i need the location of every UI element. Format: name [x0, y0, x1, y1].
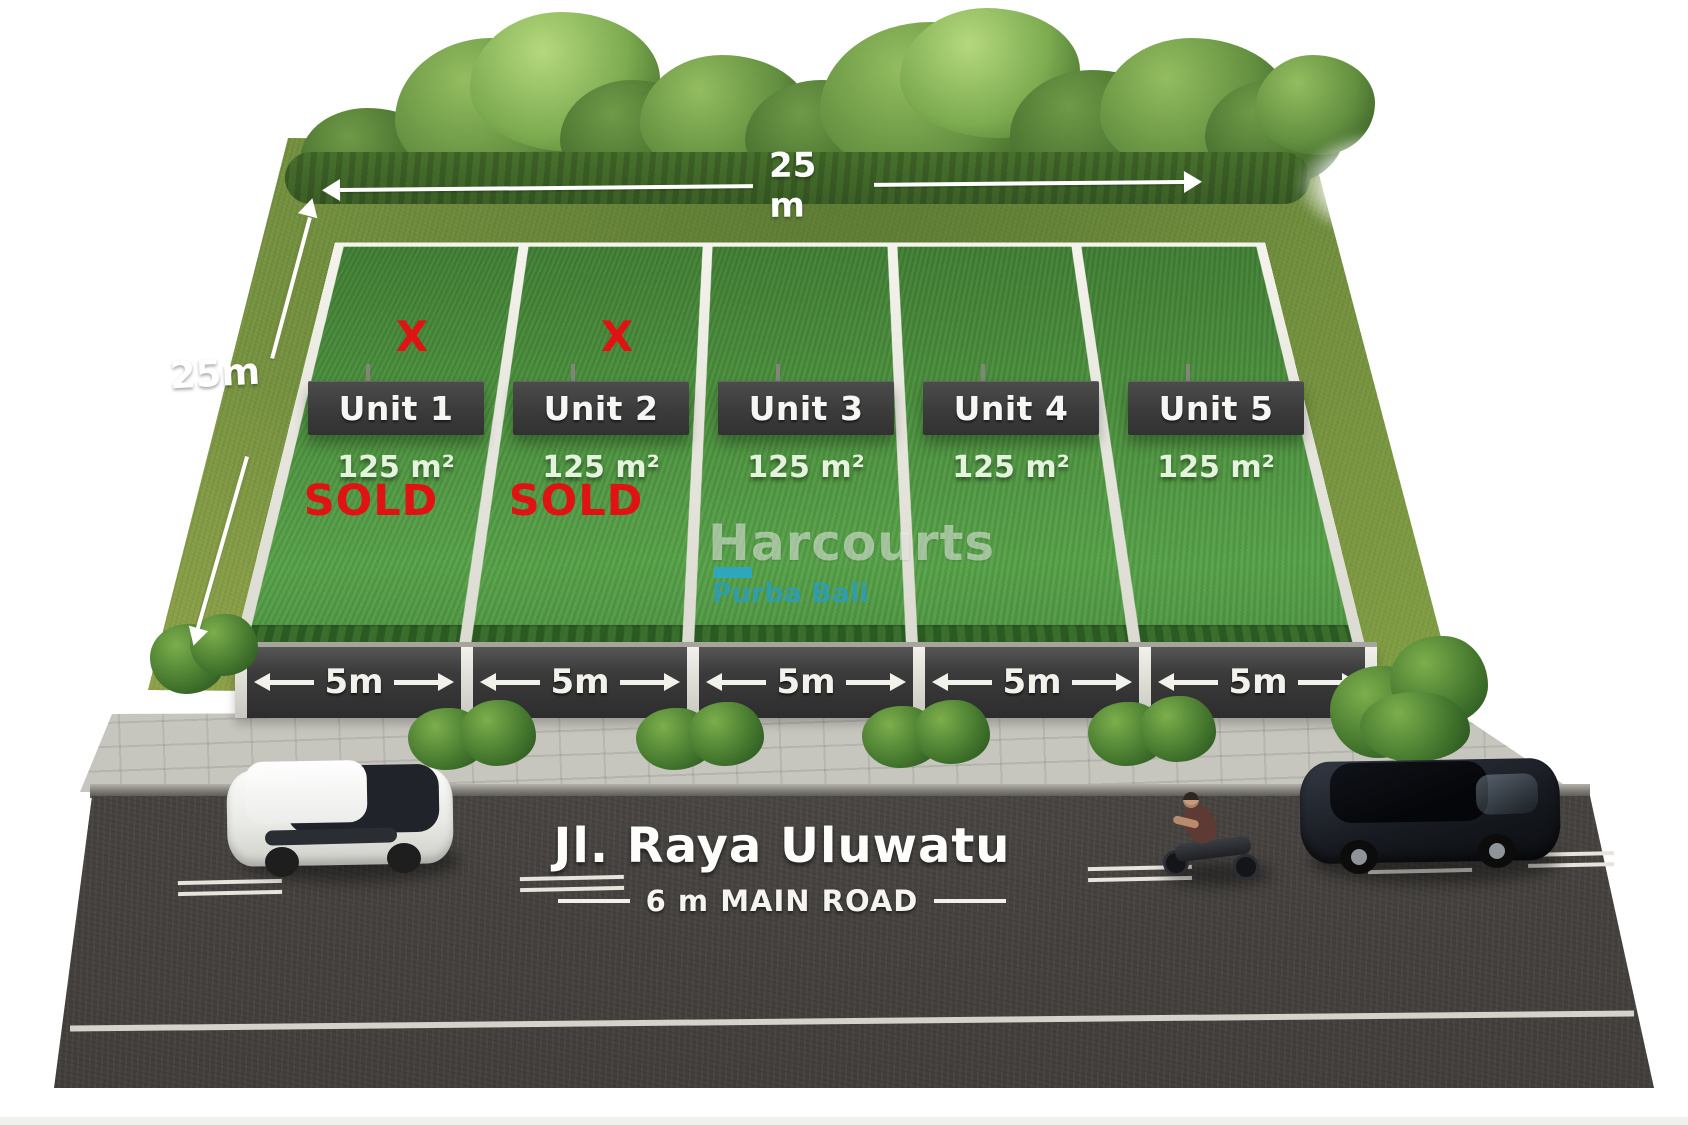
black-car — [1298, 752, 1564, 880]
road-spec-label: 6 m MAIN ROAD — [646, 884, 919, 918]
dimension-line — [340, 184, 753, 192]
sign-post — [571, 364, 575, 381]
road-name: Jl. Raya Uluwatu — [432, 818, 1132, 874]
spec-dash — [558, 899, 630, 903]
car-roof — [244, 760, 367, 824]
car-wheel — [1478, 834, 1516, 868]
right-arrow-icon — [620, 680, 664, 685]
unit-5-area: 125 m² — [1116, 450, 1316, 485]
car-wheel — [1340, 840, 1378, 874]
unit-3-name: Unit 3 — [749, 389, 864, 428]
unit-2-sign: Unit 2 — [513, 381, 689, 435]
cloud-wisp — [1412, 300, 1522, 360]
unit-3-sign: Unit 3 — [718, 381, 894, 435]
unit-1-sign: Unit 1 — [308, 381, 484, 435]
sign-post — [776, 364, 780, 381]
unit-2-sold-x-mark: X — [587, 312, 647, 361]
bush — [150, 614, 260, 704]
lane-marking — [178, 879, 282, 899]
sign-post — [981, 364, 985, 381]
frontage-label: 5m — [1228, 662, 1287, 702]
unit-5-sign: Unit 5 — [1128, 381, 1304, 435]
rider-head — [1183, 792, 1199, 808]
road-spec: 6 m MAIN ROAD — [432, 884, 1132, 918]
bush — [1330, 636, 1490, 766]
frontage-label: 5m — [324, 662, 383, 702]
cloud-wisp — [1295, 130, 1475, 240]
width-dimension-label: 25 m — [753, 145, 875, 226]
windshield-reflection — [1475, 773, 1538, 815]
land-subdivision-site-plan: 5m 5m 5m 5m 5m — [0, 0, 1688, 1125]
white-car — [225, 755, 457, 875]
bush — [636, 702, 766, 778]
sign-post — [1186, 364, 1190, 381]
arrowhead-left-icon — [322, 179, 340, 201]
car-roof — [1329, 761, 1488, 824]
left-arrow-icon — [270, 680, 314, 685]
unit-4-sign: Unit 4 — [923, 381, 1099, 435]
watermark-brand: Harcourts — [708, 514, 995, 572]
bottom-edge-strip — [0, 1117, 1688, 1125]
car-wheel — [387, 843, 421, 873]
arrowhead-right-icon — [1184, 171, 1202, 193]
right-arrow-icon — [846, 680, 890, 685]
dimension-line — [874, 180, 1184, 187]
unit-2-sold-label: SOLD — [496, 476, 656, 526]
unit-1-name: Unit 1 — [339, 389, 454, 428]
motorcycle-wheel — [1233, 854, 1259, 880]
watermark-office: Purba Bali — [712, 578, 869, 609]
frontage-label: 5m — [776, 662, 835, 702]
unit-1-sold-label: SOLD — [291, 476, 451, 526]
sign-post — [366, 364, 370, 381]
spec-dash — [934, 899, 1006, 903]
right-arrow-icon — [1072, 680, 1116, 685]
left-arrow-icon — [948, 680, 992, 685]
motorcycle — [1155, 788, 1275, 888]
depth-dimension-label: 25m — [159, 349, 271, 398]
right-arrow-icon — [394, 680, 438, 685]
left-arrow-icon — [722, 680, 766, 685]
watermark-accent-bar — [714, 567, 752, 578]
unit-5-name: Unit 5 — [1159, 389, 1274, 428]
unit-3-area: 125 m² — [706, 450, 906, 485]
frontage-label: 5m — [550, 662, 609, 702]
unit-1-sold-x-mark: X — [382, 312, 442, 361]
left-arrow-icon — [496, 680, 540, 685]
bush — [862, 700, 992, 776]
frontage-label: 5m — [1002, 662, 1061, 702]
unit-4-area: 125 m² — [911, 450, 1111, 485]
car-wheel — [265, 847, 299, 877]
unit-2-name: Unit 2 — [544, 389, 659, 428]
left-arrow-icon — [1174, 680, 1218, 685]
bush — [1088, 696, 1218, 774]
unit-4-name: Unit 4 — [954, 389, 1069, 428]
